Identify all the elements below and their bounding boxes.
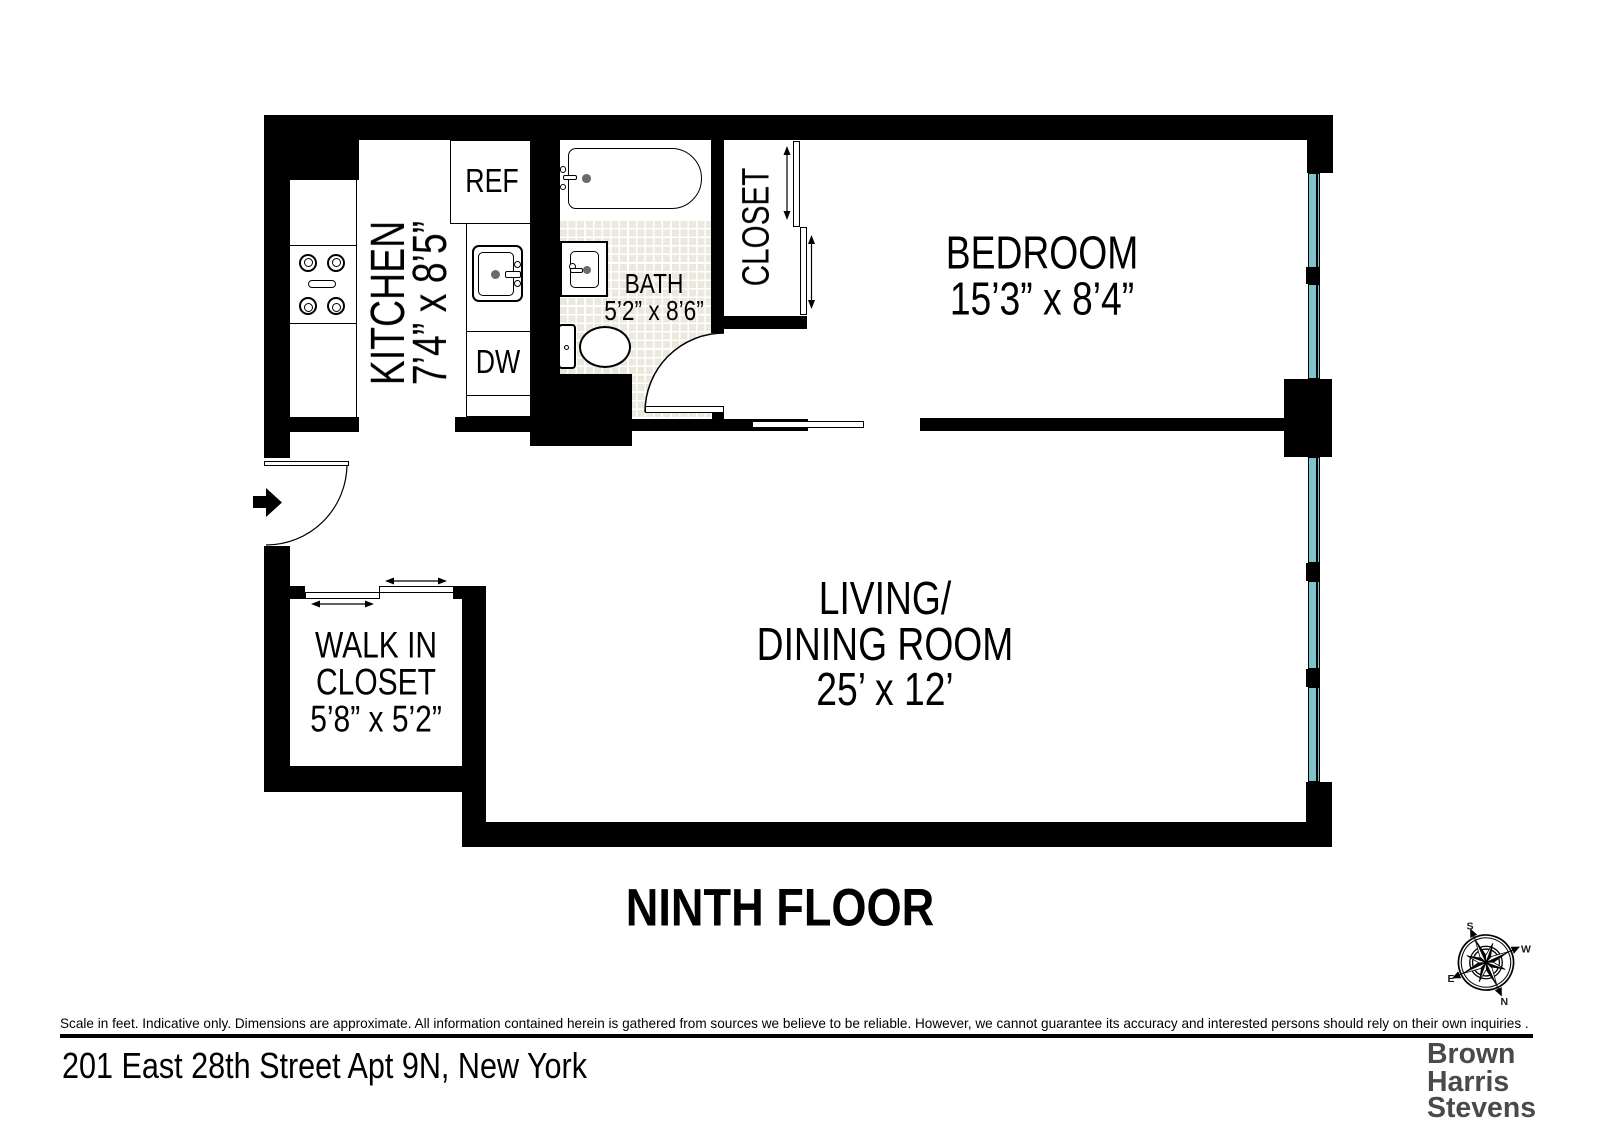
svg-text:E: E: [1448, 973, 1455, 985]
svg-text:S: S: [1467, 921, 1474, 933]
svg-text:N: N: [1501, 996, 1509, 1008]
svg-text:W: W: [1521, 944, 1531, 956]
